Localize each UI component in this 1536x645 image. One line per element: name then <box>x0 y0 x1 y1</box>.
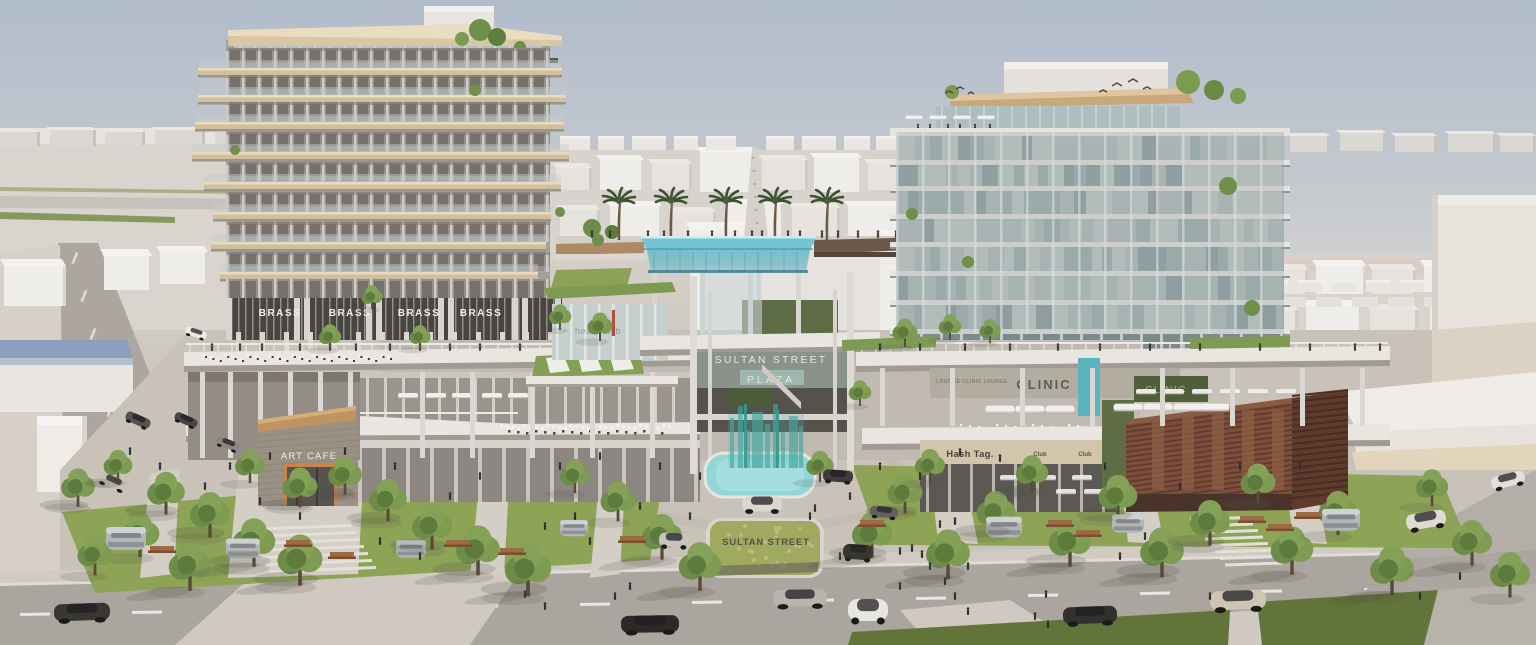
svg-text:SULTAN STREET: SULTAN STREET <box>722 537 810 548</box>
svg-text:ART CAFE: ART CAFE <box>281 451 337 462</box>
svg-text:SULTAN STREET: SULTAN STREET <box>715 354 828 366</box>
svg-text:Club: Club <box>1078 452 1092 458</box>
svg-text:BRASS: BRASS <box>398 308 441 319</box>
svg-text:LOUNGE CLINIC LOUNGE: LOUNGE CLINIC LOUNGE <box>936 379 1008 385</box>
svg-text:BRASS: BRASS <box>259 308 302 319</box>
svg-text:Hash Tag.: Hash Tag. <box>946 449 993 460</box>
svg-text:BRASS: BRASS <box>460 308 503 319</box>
